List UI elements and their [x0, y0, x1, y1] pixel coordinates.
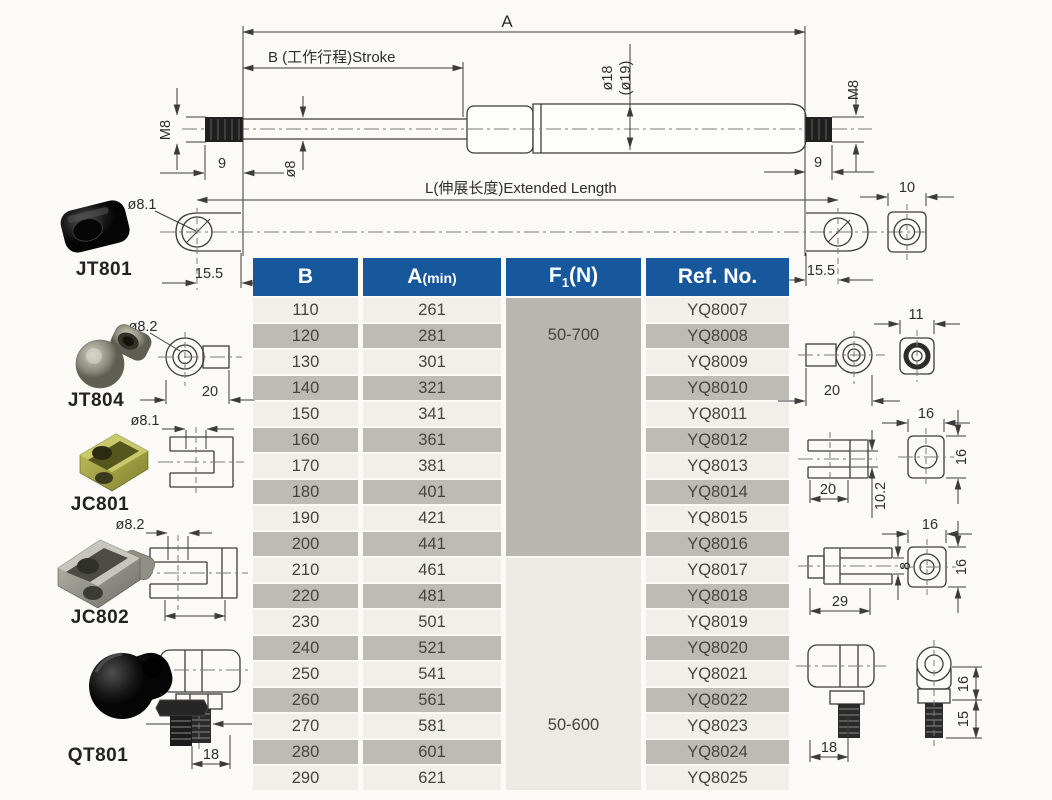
jt804-label: JT804: [68, 390, 124, 411]
jt801-width-label: 15.5: [195, 266, 223, 282]
ref-value: YQ8016: [646, 532, 789, 556]
qt801-stud-right: [838, 704, 860, 738]
qt801-stud-label: 15: [956, 711, 972, 727]
dim-a-label: A: [501, 12, 513, 31]
b-value: 120: [253, 324, 358, 348]
jc801-slot-label: 10.2: [873, 482, 889, 510]
table-header-row: B A(min) F1(N) Ref. No.: [253, 258, 789, 296]
qt801-photo-stud: [170, 716, 192, 746]
b-value: 220: [253, 584, 358, 608]
a-value: 501: [363, 610, 501, 634]
table-row: 11026150-700YQ8007: [253, 298, 789, 322]
col-header-ref: Ref. No.: [646, 258, 789, 296]
qt801-view-right-side: 18: [796, 645, 886, 762]
ref-value: YQ8019: [646, 610, 789, 634]
b-value: 200: [253, 532, 358, 556]
jc802-label: JC802: [71, 607, 130, 628]
a-value: 401: [363, 480, 501, 504]
jc801-photo: [80, 434, 148, 491]
ref-value: YQ8015: [646, 506, 789, 530]
jc801-width-label: 20: [820, 482, 836, 498]
dim-stroke-B: B (工作行程)Stroke: [243, 49, 463, 117]
qt801-label: QT801: [68, 745, 129, 766]
b-value: 170: [253, 454, 358, 478]
jc802-photo: [58, 540, 157, 608]
tube-dia-alt-label: (ø19): [618, 61, 634, 96]
jc801-view-right: 20 10.2: [798, 430, 889, 518]
ref-value: YQ8008: [646, 324, 789, 348]
ref-value: YQ8009: [646, 350, 789, 374]
a-value: 361: [363, 428, 501, 452]
jc801-label: JC801: [71, 494, 130, 515]
a-value: 421: [363, 506, 501, 530]
jc801-dia-label: ø8.1: [130, 413, 159, 429]
a-value: 601: [363, 740, 501, 764]
col-header-b: B: [253, 258, 358, 296]
b-value: 130: [253, 350, 358, 374]
jc802-face-h-label: 16: [954, 559, 970, 575]
a-value: 581: [363, 714, 501, 738]
ball-socket-view-right: 20: [778, 331, 900, 406]
jt801-dia-label: ø8.1: [127, 197, 156, 213]
dim-l-label: L(伸展长度)Extended Length: [425, 180, 617, 197]
b-value: 280: [253, 740, 358, 764]
a-value: 621: [363, 766, 501, 790]
dim-thread-9-left: 9: [160, 145, 284, 180]
m8-left-label: M8: [158, 120, 174, 140]
ref-value: YQ8012: [646, 428, 789, 452]
col-header-a: A(min): [363, 258, 501, 296]
qt801-width-label: 18: [821, 740, 837, 756]
eyelet-width-right-label: 15.5: [807, 263, 835, 279]
ref-value: YQ8017: [646, 558, 789, 582]
m8-right-label: M8: [846, 80, 862, 100]
jc802-pin-label: 8: [898, 562, 914, 570]
b-value: 250: [253, 662, 358, 686]
b-value: 140: [253, 376, 358, 400]
b-value: 290: [253, 766, 358, 790]
f1-range-group1: 50-700: [506, 298, 641, 556]
gas-spring-view: [182, 104, 872, 153]
b-value: 210: [253, 558, 358, 582]
dim-b-label: B (工作行程)Stroke: [268, 49, 396, 66]
ref-value: YQ8010: [646, 376, 789, 400]
rod-dia-label: ø8: [283, 161, 299, 178]
ref-value: YQ8018: [646, 584, 789, 608]
nine-right-label: 9: [814, 155, 822, 171]
tube-dia-label: ø18: [600, 66, 616, 91]
b-value: 190: [253, 506, 358, 530]
a-value: 281: [363, 324, 501, 348]
ref-value: YQ8025: [646, 766, 789, 790]
eyelet-thickness-label: 10: [899, 180, 915, 196]
dim-extended-length-L: L(伸展长度)Extended Length: [197, 180, 838, 200]
ref-value: YQ8011: [646, 402, 789, 426]
qt801-stud-len-label: 18: [203, 747, 219, 763]
ref-value: YQ8007: [646, 298, 789, 322]
jc801-face-w-label: 16: [918, 406, 934, 422]
b-value: 180: [253, 480, 358, 504]
a-value: 561: [363, 688, 501, 712]
table-row: 21046150-600YQ8017: [253, 558, 789, 582]
a-value: 321: [363, 376, 501, 400]
b-value: 270: [253, 714, 358, 738]
b-value: 160: [253, 428, 358, 452]
dim-rod-diameter: ø8: [283, 96, 303, 177]
jc802-width-label: 29: [832, 594, 848, 610]
ref-value: YQ8024: [646, 740, 789, 764]
eyelet-top-view: 10: [860, 180, 954, 260]
col-header-f1: F1(N): [506, 258, 641, 296]
jc802-dia-label: ø8.2: [115, 517, 144, 533]
b-value: 230: [253, 610, 358, 634]
a-value: 481: [363, 584, 501, 608]
ref-value: YQ8013: [646, 454, 789, 478]
jt804-view-left: 20 ø8.2: [128, 319, 255, 404]
jt801-photo: [58, 198, 132, 256]
dim-m8-right: M8: [832, 80, 864, 172]
a-value: 301: [363, 350, 501, 374]
socket-thickness-label: 11: [908, 307, 923, 323]
a-value: 261: [363, 298, 501, 322]
nine-left-label: 9: [218, 156, 226, 172]
body-thread: [806, 117, 832, 142]
b-value: 260: [253, 688, 358, 712]
a-value: 341: [363, 402, 501, 426]
jt801-label: JT801: [76, 259, 132, 280]
socket-width-label: 20: [824, 383, 840, 399]
jt804-width-label: 20: [202, 384, 218, 400]
a-value: 441: [363, 532, 501, 556]
qt801-view-right-front: 16 15: [917, 640, 982, 746]
rod-thread: [205, 117, 243, 142]
jc802-face-view: 16 16: [882, 517, 972, 613]
ref-value: YQ8023: [646, 714, 789, 738]
gas-spring-catalog-page: A B (工作行程)Stroke ø18 (ø19) M8 M8 9 9: [0, 0, 1052, 800]
b-value: 110: [253, 298, 358, 322]
f1-range-group2: 50-600: [506, 558, 641, 790]
ref-value: YQ8021: [646, 662, 789, 686]
a-value: 521: [363, 636, 501, 660]
jc802-face-w-label: 16: [922, 517, 938, 533]
qt801-height-label: 16: [956, 676, 972, 692]
jc801-face-h-label: 16: [954, 449, 970, 465]
a-value: 461: [363, 558, 501, 582]
jc801-face-view: 16 16: [882, 406, 970, 504]
ball-socket-top-view: 11: [874, 307, 960, 382]
a-value: 541: [363, 662, 501, 686]
jc802-view-right: 8 29: [798, 532, 914, 615]
spec-table: B A(min) F1(N) Ref. No. 11026150-700YQ80…: [248, 256, 794, 792]
ref-value: YQ8014: [646, 480, 789, 504]
a-value: 381: [363, 454, 501, 478]
b-value: 240: [253, 636, 358, 660]
ref-value: YQ8022: [646, 688, 789, 712]
ref-value: YQ8020: [646, 636, 789, 660]
b-value: 150: [253, 402, 358, 426]
